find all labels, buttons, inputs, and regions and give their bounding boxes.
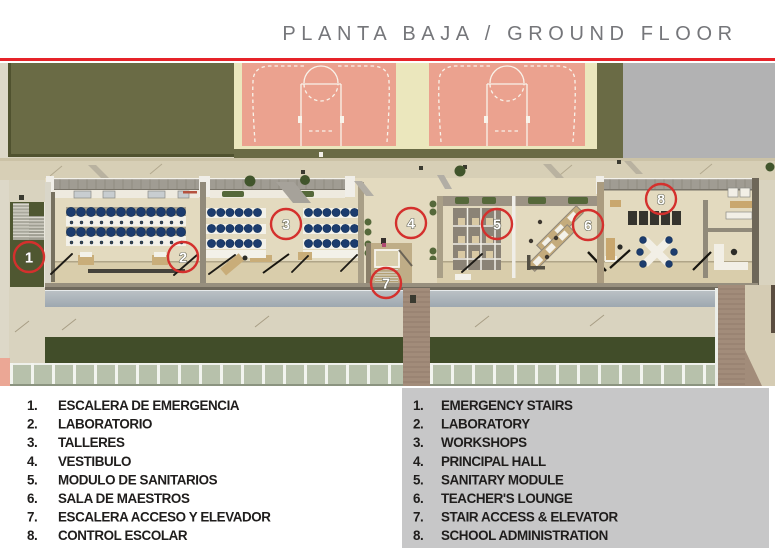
svg-text:TALLERES: TALLERES xyxy=(58,435,125,450)
svg-text:SANITARY MODULE: SANITARY MODULE xyxy=(441,472,564,487)
svg-text:LABORATORY: LABORATORY xyxy=(441,417,530,432)
svg-text:2.: 2. xyxy=(27,417,37,432)
svg-text:STAIR ACCESS & ELEVATOR: STAIR ACCESS & ELEVATOR xyxy=(441,510,619,525)
svg-text:ESCALERA DE EMERGENCIA: ESCALERA DE EMERGENCIA xyxy=(58,398,240,413)
svg-text:VESTIBULO: VESTIBULO xyxy=(58,454,131,469)
svg-text:5: 5 xyxy=(493,218,501,234)
svg-text:5.: 5. xyxy=(413,472,423,487)
svg-text:6: 6 xyxy=(584,219,592,235)
svg-text:1.: 1. xyxy=(413,398,423,413)
svg-text:6.: 6. xyxy=(27,491,37,506)
svg-text:2.: 2. xyxy=(413,417,423,432)
svg-text:PLANTA BAJA / GROUND FLOOR: PLANTA BAJA / GROUND FLOOR xyxy=(282,23,737,45)
svg-text:WORKSHOPS: WORKSHOPS xyxy=(441,435,527,450)
svg-text:7.: 7. xyxy=(413,510,423,525)
svg-text:3.: 3. xyxy=(413,435,423,450)
svg-text:PRINCIPAL HALL: PRINCIPAL HALL xyxy=(441,454,546,469)
svg-text:7.: 7. xyxy=(27,510,37,525)
svg-text:1: 1 xyxy=(25,251,33,267)
svg-text:SALA DE MAESTROS: SALA DE MAESTROS xyxy=(58,491,190,506)
svg-text:3.: 3. xyxy=(27,435,37,450)
svg-text:7: 7 xyxy=(382,277,390,293)
svg-text:6.: 6. xyxy=(413,491,423,506)
svg-text:5.: 5. xyxy=(27,472,37,487)
svg-text:3: 3 xyxy=(282,218,290,234)
svg-text:8.: 8. xyxy=(413,528,423,543)
svg-text:8.: 8. xyxy=(27,528,37,543)
svg-text:4.: 4. xyxy=(27,454,37,469)
svg-text:MODULO DE SANITARIOS: MODULO DE SANITARIOS xyxy=(58,472,218,487)
svg-text:CONTROL ESCOLAR: CONTROL ESCOLAR xyxy=(58,528,188,543)
svg-text:TEACHER'S LOUNGE: TEACHER'S LOUNGE xyxy=(441,491,573,506)
svg-text:LABORATORIO: LABORATORIO xyxy=(58,417,152,432)
svg-text:SCHOOL ADMINISTRATION: SCHOOL ADMINISTRATION xyxy=(441,528,608,543)
svg-text:ESCALERA ACCESO Y ELEVADOR: ESCALERA ACCESO Y ELEVADOR xyxy=(58,510,271,525)
svg-text:1.: 1. xyxy=(27,398,37,413)
svg-text:2: 2 xyxy=(179,251,187,267)
svg-text:8: 8 xyxy=(657,193,665,209)
svg-text:4.: 4. xyxy=(413,454,423,469)
svg-text:4: 4 xyxy=(407,217,415,233)
svg-text:EMERGENCY STAIRS: EMERGENCY STAIRS xyxy=(441,398,573,413)
